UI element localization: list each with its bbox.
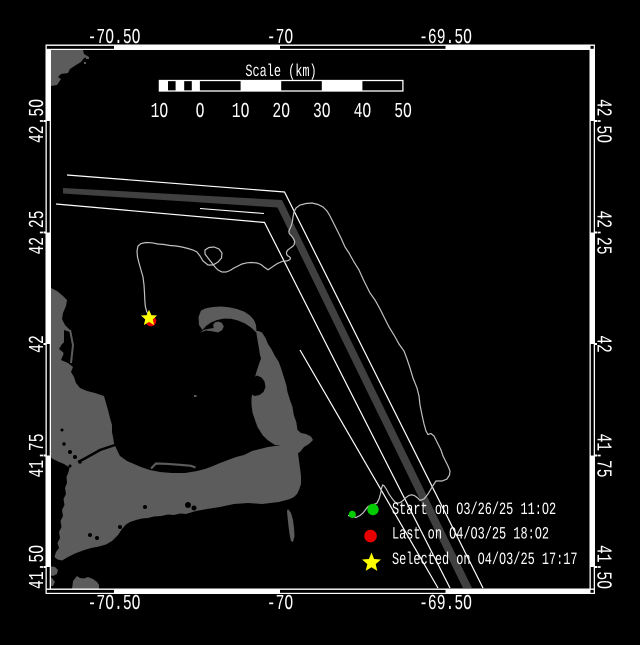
svg-text:42: 42 [27,335,50,353]
svg-text:1O: 1O [151,101,169,124]
svg-text:Last on O4/O3/25 18:O2: Last on O4/O3/25 18:O2 [392,524,549,544]
svg-text:41.75: 41.75 [27,433,50,477]
svg-text:-7O.5O: -7O.5O [88,27,141,50]
svg-text:Selected on O4/O3/25 17:17: Selected on O4/O3/25 17:17 [392,550,578,570]
svg-text:-7O: -7O [267,27,294,50]
svg-text:2O: 2O [272,101,290,124]
svg-text:42: 42 [590,335,613,353]
svg-text:3O: 3O [313,101,331,124]
svg-text:O: O [196,101,205,124]
svg-text:-7O.5O: -7O.5O [88,593,141,616]
svg-text:41.5O: 41.5O [590,545,613,589]
svg-text:42.5O: 42.5O [590,99,613,143]
svg-text:4O: 4O [354,101,372,124]
svg-text:41.5O: 41.5O [27,545,50,589]
svg-text:5O: 5O [394,101,412,124]
svg-text:Start on O3/26/25 11:O2: Start on O3/26/25 11:O2 [392,500,556,520]
svg-text:-7O: -7O [267,593,294,616]
svg-text:1O: 1O [232,101,250,124]
svg-text:-69.5O: -69.5O [419,593,472,616]
svg-text:Scale (km): Scale (km) [245,62,316,82]
svg-text:42.25: 42.25 [27,210,50,254]
svg-text:42.5O: 42.5O [27,99,50,143]
svg-text:41.75: 41.75 [590,433,613,477]
svg-text:42.25: 42.25 [590,210,613,254]
svg-text:-69.5O: -69.5O [419,27,472,50]
